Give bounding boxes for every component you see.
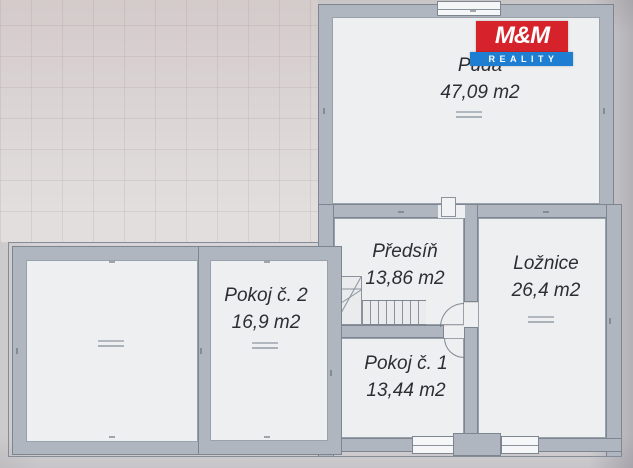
- room-name: Pokoj č. 2: [186, 282, 346, 309]
- dimension-tick: [543, 211, 549, 213]
- dimension-tick: [323, 108, 325, 114]
- door-opening-loznice: [464, 303, 478, 327]
- dimension-tick: [603, 108, 605, 114]
- room-name: Ložnice: [466, 250, 626, 277]
- window-pane-line: [413, 445, 453, 446]
- logo-brand-mark: M&M: [476, 21, 568, 52]
- room-label-loznice: Ložnice 26,4 m2: [466, 250, 626, 304]
- room-area: 13,44 m2: [326, 377, 486, 404]
- dimension-tick: [470, 10, 476, 12]
- room-left-unlabeled-floor: [26, 260, 198, 442]
- roof-grid-area: [0, 0, 318, 243]
- plan-outline-bottom: [8, 456, 622, 457]
- room-label-pokoj2: Pokoj č. 2 16,9 m2: [186, 282, 346, 336]
- stamp-mark: [528, 315, 554, 325]
- room-area: 26,4 m2: [466, 277, 626, 304]
- room-area: 13,86 m2: [325, 265, 485, 292]
- dimension-tick: [109, 261, 115, 263]
- dimension-tick: [398, 211, 404, 213]
- hatch-pane-line: [438, 9, 500, 10]
- roof-hatch-symbol: [437, 1, 501, 16]
- window-symbol-loznice: [501, 436, 539, 454]
- dimension-tick: [264, 436, 270, 438]
- wall-main-right: [606, 204, 622, 457]
- room-name: Pokoj č. 1: [326, 350, 486, 377]
- dimension-tick: [200, 348, 202, 354]
- stamp-mark: [98, 339, 124, 349]
- stamp-mark: [252, 341, 278, 351]
- floorplan-photo: Půda 47,09 m2 Předsíň 13,86 m2 Ložnice 2…: [0, 0, 633, 468]
- dimension-tick: [109, 436, 115, 438]
- logo-subtitle: REALITY: [470, 52, 573, 66]
- plan-outline-top: [8, 242, 318, 243]
- window-pane-line: [502, 445, 538, 446]
- dimension-tick: [16, 348, 18, 354]
- window-symbol-pokoj1: [412, 436, 454, 454]
- room-name: Předsíň: [325, 238, 485, 265]
- stamp-mark: [456, 110, 482, 120]
- wall-predsin-pokoj1: [334, 325, 444, 338]
- dimension-tick: [609, 318, 611, 324]
- room-area: 47,09 m2: [400, 79, 560, 106]
- room-label-predsin: Předsíň 13,86 m2: [325, 238, 485, 292]
- room-area: 16,9 m2: [186, 309, 346, 336]
- stair-top-landing-symbol: [441, 197, 456, 217]
- staircase-treads: [362, 300, 426, 325]
- door-opening-pokoj1: [444, 326, 464, 338]
- plan-outline-left: [8, 242, 9, 457]
- agency-logo: M&M REALITY: [470, 21, 573, 66]
- room-label-pokoj1: Pokoj č. 1 13,44 m2: [326, 350, 486, 404]
- dimension-tick: [264, 261, 270, 263]
- wall-pillar-between-windows: [453, 433, 501, 456]
